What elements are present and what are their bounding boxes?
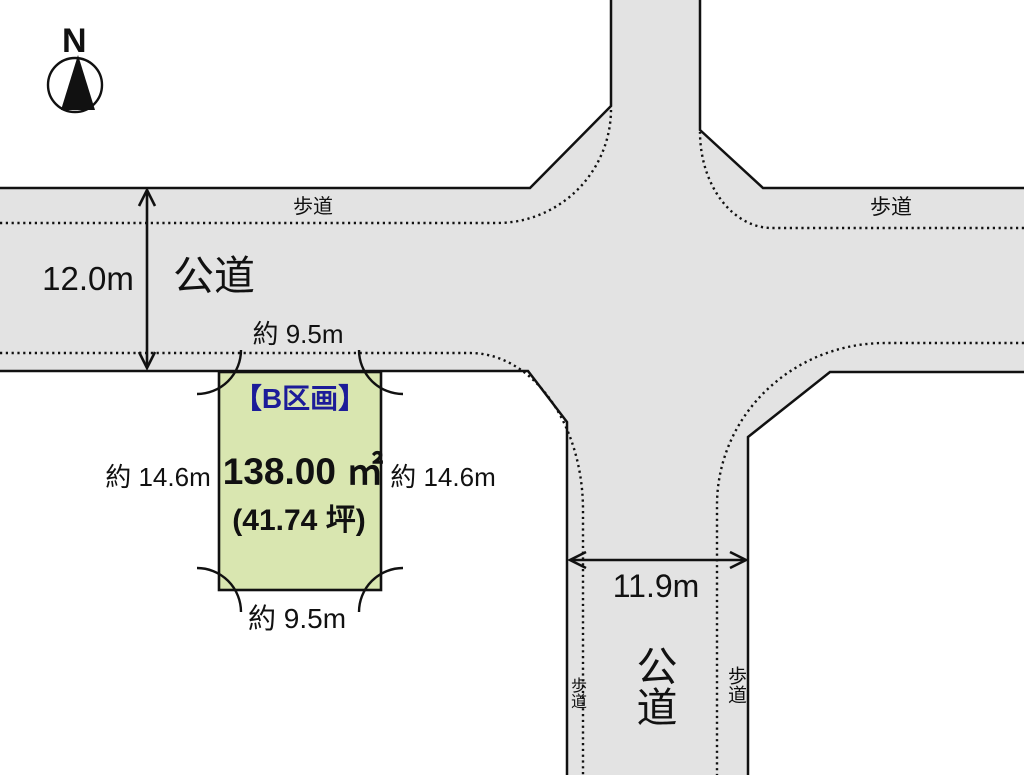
road-vertical-name-label: 公道 — [632, 645, 673, 727]
road-edge-top-right — [700, 0, 1024, 188]
compass-north-label: N — [62, 24, 87, 58]
road-vertical-width-label: 11.9m — [613, 570, 700, 602]
plot-width-bottom-label: 約 9.5m — [248, 605, 346, 633]
road-horizontal-name-label: 公道 — [173, 256, 255, 297]
plot-depth-right-label: 約 14.6m — [390, 464, 496, 490]
plot-title: 【B区画】 — [234, 385, 366, 413]
sidewalk-label-bottom-left: 歩道 — [568, 677, 584, 709]
land-plot-diagram: N 12.0m 公道 歩道 歩道 約 9.5m 【B区画】 138.00 ㎡ (… — [0, 0, 1024, 775]
sidewalk-label-top-right: 歩道 — [870, 197, 912, 218]
sidewalk-label-top-left: 歩道 — [293, 197, 333, 217]
plot-area-tsubo: (41.74 坪) — [232, 506, 365, 536]
road-horizontal-width-label: 12.0m — [42, 262, 134, 295]
road-edge-bottom-right — [748, 372, 1024, 775]
diagram-canvas — [0, 0, 1024, 775]
road-surface — [0, 0, 1024, 775]
sidewalk-label-bottom-right: 歩道 — [726, 666, 745, 704]
plot-depth-left-label: 約 14.6m — [105, 464, 211, 490]
plot-area-sqm: 138.00 ㎡ — [223, 453, 383, 490]
plot-width-top-label: 約 9.5m — [252, 321, 343, 347]
north-compass — [48, 55, 102, 112]
